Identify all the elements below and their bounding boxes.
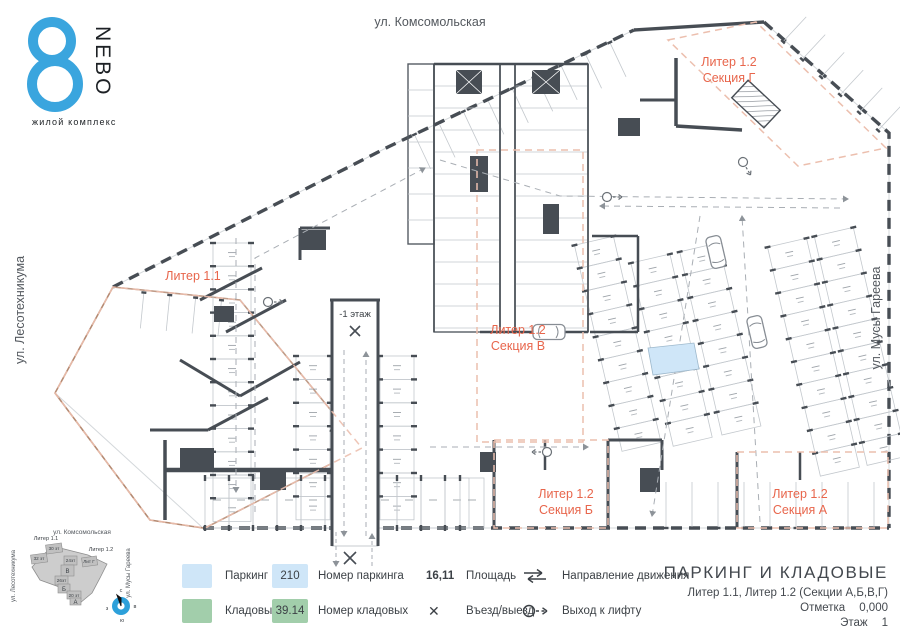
liter11-label: Литер 1.1 [165,269,221,283]
svg-text:В: В [65,569,69,575]
legend-storage-number-label: Номер кладовых [318,598,408,624]
room-partition [821,52,844,77]
section-a-label: Литер 1.2 [772,487,828,501]
stall-tick [859,442,865,443]
stall-tick [626,304,632,305]
legend-storage-swatch [182,598,212,624]
stall-tick [814,283,820,284]
stall-tick [598,359,604,360]
svg-text:Секция Б: Секция Б [539,503,593,517]
stall-tick [726,288,732,289]
stall-tick [887,387,893,388]
stall-tick [714,411,720,412]
stall-tick [614,428,620,429]
floor-line: Этаж1 [664,616,888,631]
stall-tick [827,304,833,305]
stall-tick [653,419,659,420]
lift-circle [543,448,552,457]
stall-tick [854,419,860,420]
legend-exit-label: Выход к лифту [562,598,641,624]
stall-tick [786,338,792,339]
svg-text:26эт: 26эт [57,578,67,583]
svg-text:Секция В: Секция В [491,339,545,353]
stall-tick [841,398,847,399]
room-partition [802,35,825,60]
stall-tick [621,281,627,282]
stall-tick [851,444,857,445]
stall-tick [704,414,710,415]
legend-area-value: 16,11 [426,563,454,589]
minimap-street-top: ул. Комсомольская [53,529,111,536]
stall-tick [861,272,867,273]
stall-tick [893,410,899,411]
stall-tick [593,336,599,337]
svg-text:30 эт: 30 эт [49,546,61,551]
room-partition [783,17,806,42]
building-core [300,230,326,250]
room-partition [859,88,882,113]
legend-storage-label: Кладовые [225,598,279,624]
stall-tick [639,308,645,309]
stall-tick [742,357,748,358]
stall-tick [577,267,583,268]
legend-area-label: Площадь [466,563,516,589]
legend-parking-number-box: 210 [272,563,308,589]
logo-8-icon [32,22,78,107]
stall-tick [637,350,643,351]
building-core [618,118,640,136]
stall-tick [812,453,818,454]
street-left-label: ул. Лесотехникума [13,256,27,364]
building-core [214,306,234,322]
stall-tick [678,299,684,300]
stall-tick [796,384,802,385]
stall-tick [699,391,705,392]
minimap: ул. Комсомольская ул. Лесотехникума ул. … [6,518,164,636]
highlighted-parking-stall[interactable] [648,343,699,375]
stall-tick [609,405,615,406]
legend-parking-number-label: Номер паркинга [318,563,404,589]
stall-tick [660,400,666,401]
room-partition [878,106,900,131]
logo: NEBO жилой комплекс [14,8,154,133]
stall-tick [665,423,671,424]
lift-circle [603,193,612,202]
stall-tick [770,269,776,270]
svg-text:с: с [120,588,123,594]
lift-exit-icon [522,598,552,624]
logo-name: NEBO [91,26,114,98]
stall-tick [835,375,841,376]
logo-subtitle: жилой комплекс [32,117,117,127]
svg-text:в: в [134,604,137,610]
section-v-label: Литер 1.2 [490,323,546,337]
title-subtitle: Литер 1.1, Литер 1.2 (Секции А,Б,В,Г) [664,586,888,601]
stall-tick [682,274,688,275]
stall-tick [843,373,849,374]
stall-tick [817,259,823,260]
stall-tick [616,258,622,259]
stall-tick [780,315,786,316]
stall-tick [654,377,660,378]
stall-tick [856,250,862,251]
legend-parking-label: Паркинг [225,563,268,589]
stall-tick [632,327,638,328]
stall-tick [822,281,828,282]
minimap-street-left: ул. Лесотехникума [11,549,17,602]
stall-tick [838,350,844,351]
building-core [543,204,559,234]
street-right-label: ул. Мусы Гареева [869,267,883,370]
room-partition [840,70,863,95]
stall-tick [819,306,825,307]
svg-text:20 эт: 20 эт [69,593,81,598]
svg-text:А: А [73,600,77,606]
street-top-label: ул. Комсомольская [374,15,485,29]
stall-tick [698,343,704,344]
svg-text:Секция Г: Секция Г [703,71,756,85]
svg-text:ю: ю [120,618,124,624]
svg-text:Лит Г: Лит Г [83,559,95,564]
stall-tick [747,380,753,381]
stall-tick [693,320,699,321]
stall-tick [603,382,609,383]
parking-floor-plan-page: { "logo": { "name": "NEBO", "subtitle": … [0,0,900,637]
stall-tick [846,421,852,422]
minimap-liter12-label: Литер 1.2 [89,547,113,553]
stall-tick [683,322,689,323]
stall-tick [642,373,648,374]
entry-exit-icon: ✕ [428,598,440,624]
svg-text:з: з [106,606,109,612]
building-core [180,448,214,470]
stall-tick [809,260,815,261]
section-b-label: Литер 1.2 [538,487,594,501]
building-core [640,468,660,492]
ramp-label: -1 этаж [339,309,371,320]
svg-text:Б: Б [62,587,66,593]
stall-tick [825,329,831,330]
lift-circle [264,298,273,307]
stall-tick [703,366,709,367]
stall-tick [791,361,797,362]
stall-tick [775,292,781,293]
building-core [260,470,286,490]
title-block: ПАРКИНГ И КЛАДОВЫЕ Литер 1.1, Литер 1.2 … [664,563,888,631]
stall-tick [807,430,813,431]
stall-tick [737,334,743,335]
stall-tick [732,311,738,312]
stall-tick [833,327,839,328]
legend: Паркинг 210 Номер паркинга 16,11 Площадь… [182,560,702,632]
stall-tick [708,389,714,390]
elevation-line: Отметка0,000 [664,601,888,616]
svg-text:Секция А: Секция А [773,503,828,517]
stall-tick [644,331,650,332]
stall-tick [848,396,854,397]
stall-tick [830,352,836,353]
section-g-label: Литер 1.2 [701,55,757,69]
legend-parking-swatch [182,563,212,589]
stall-tick [647,396,653,397]
ramp: -1 этаж [330,300,380,546]
stall-tick [687,297,693,298]
svg-text:24эт: 24эт [66,558,76,563]
svg-text:32 эт: 32 эт [34,556,46,561]
page-title: ПАРКИНГ И КЛАДОВЫЕ [664,563,888,583]
legend-storage-number-box: 39.14 [272,598,308,624]
direction-icon [522,563,548,589]
stall-tick [802,407,808,408]
stall-tick [672,276,678,277]
minimap-street-right: ул. Мусы Гареева [126,548,132,598]
stall-tick [753,402,759,403]
minimap-liter11-label: Литер 1.1 [34,536,58,542]
